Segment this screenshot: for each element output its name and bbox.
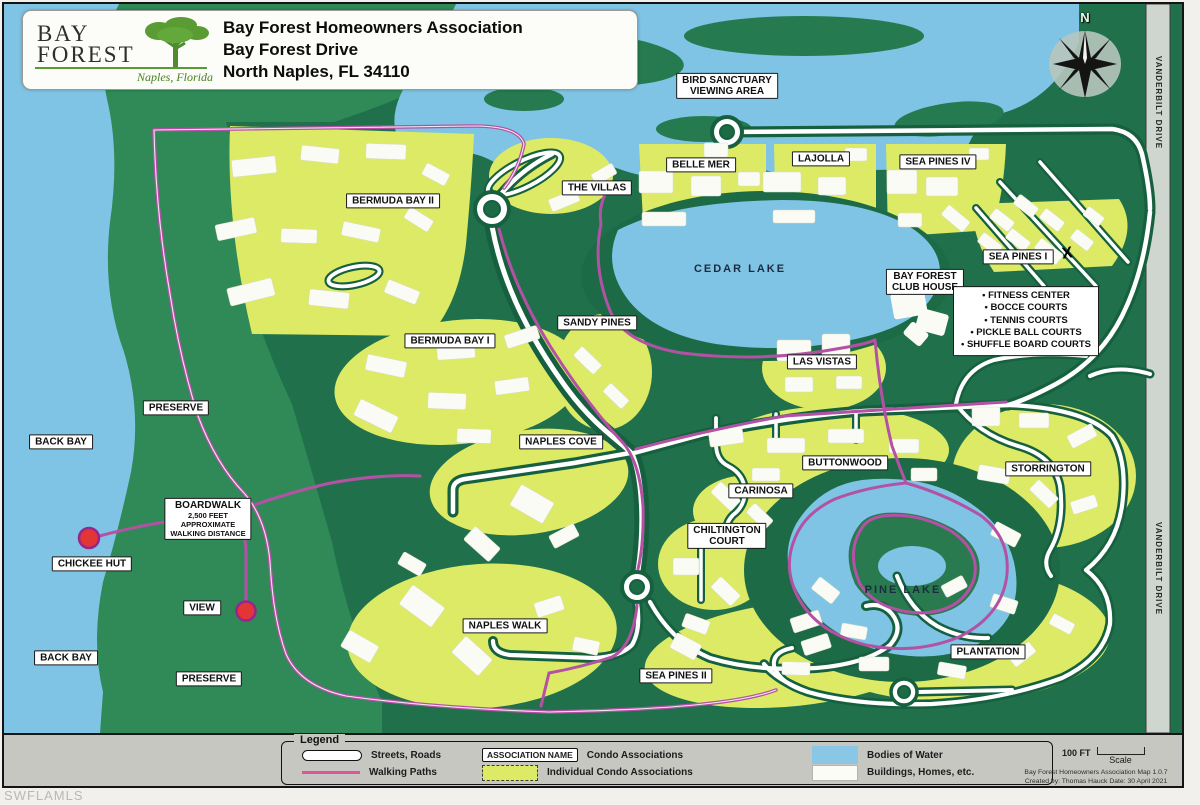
label-sea-pines-iv: SEA PINES IV <box>899 154 976 169</box>
label-belle-mer: BELLE MER <box>666 157 736 172</box>
walking-path-swatch-icon <box>302 771 360 774</box>
x-mark: X <box>1061 244 1074 263</box>
label-bermuda-bay-i: BERMUDA BAY I <box>404 333 495 348</box>
legend: Legend Streets, Roads ASSOCIATION NAME C… <box>281 741 1053 785</box>
legend-walking-paths-label: Walking Paths <box>369 767 437 778</box>
label-chickee-hut: CHICKEE HUT <box>52 556 132 571</box>
association-name-swatch: ASSOCIATION NAME <box>482 748 578 762</box>
label-storrington: STORRINGTON <box>1005 461 1091 476</box>
page-title: Bay Forest Homeowners Association Bay Fo… <box>223 17 523 83</box>
legend-buildings-label: Buildings, Homes, etc. <box>867 767 974 778</box>
legend-condo-assoc-label: Condo Associations <box>587 750 683 761</box>
label-view: VIEW <box>183 600 221 615</box>
legend-item-condo-assoc: ASSOCIATION NAME Condo Associations <box>482 748 812 762</box>
label-plantation: PLANTATION <box>951 644 1026 659</box>
label-naples-walk: NAPLES WALK <box>463 618 548 633</box>
legend-item-individual-condo: Individual Condo Associations <box>482 765 812 781</box>
title-line-2: Bay Forest Drive <box>223 39 523 61</box>
map-frame: BAY FOREST Naples, Florida Bay Forest Ho… <box>2 2 1184 788</box>
legend-item-water: Bodies of Water <box>812 746 1052 764</box>
legend-water-label: Bodies of Water <box>867 750 943 761</box>
pine-lake-inner-pond <box>878 546 946 586</box>
logo-underline <box>35 67 207 69</box>
boardwalk-sub: 2,500 FEET APPROXIMATE WALKING DISTANCE <box>170 511 245 538</box>
label-bird-sanctuary: BIRD SANCTUARY VIEWING AREA <box>676 73 778 99</box>
label-sea-pines-ii: SEA PINES II <box>639 668 712 683</box>
label-cedar-lake: CEDAR LAKE <box>689 262 791 276</box>
map-credits: Bay Forest Homeowners Association Map 1.… <box>1012 768 1180 786</box>
logo-subtitle: Naples, Florida <box>23 70 213 85</box>
label-buttonwood: BUTTONWOOD <box>802 455 888 470</box>
compass-rose-icon: N <box>1046 12 1124 109</box>
map-graphic <box>4 4 1184 733</box>
label-sandy-pines: SANDY PINES <box>557 315 637 330</box>
label-sea-pines-i: SEA PINES I <box>983 249 1054 264</box>
watermark: SWFLAMLS <box>4 788 84 803</box>
label-amenities: • FITNESS CENTER • BOCCE COURTS • TENNIS… <box>953 286 1099 356</box>
vanderbilt-drive-label-bottom: VANDERBILT DRIVE <box>1154 522 1163 615</box>
label-preserve-lower: PRESERVE <box>176 671 242 686</box>
label-las-vistas: LAS VISTAS <box>787 354 857 369</box>
label-back-bay-upper: BACK BAY <box>29 434 93 449</box>
label-carinosa: CARINOSA <box>728 483 793 498</box>
scale-bracket-icon <box>1097 747 1145 755</box>
title-block: BAY FOREST Naples, Florida Bay Forest Ho… <box>22 10 638 90</box>
vanderbilt-drive-label-top: VANDERBILT DRIVE <box>1154 56 1163 149</box>
label-bermuda-bay-ii: BERMUDA BAY II <box>346 193 440 208</box>
label-the-villas: THE VILLAS <box>562 180 632 195</box>
label-back-bay-lower: BACK BAY <box>34 650 98 665</box>
compass-north-label: N <box>1080 10 1089 25</box>
road-swatch-icon <box>302 750 362 761</box>
boardwalk-title: BOARDWALK <box>175 500 241 511</box>
scale-bar: 100 FT Scale <box>1062 747 1145 765</box>
label-chiltington-court: CHILTINGTON COURT <box>687 523 766 549</box>
credits-line-1: Bay Forest Homeowners Association Map 1.… <box>1012 768 1180 777</box>
legend-individual-condo-label: Individual Condo Associations <box>547 767 693 778</box>
label-naples-cove: NAPLES COVE <box>519 434 603 449</box>
view-marker <box>237 602 256 621</box>
water-swatch-icon <box>812 746 858 764</box>
legend-title: Legend <box>294 734 345 746</box>
legend-streets-label: Streets, Roads <box>371 750 441 761</box>
title-line-3: North Naples, FL 34110 <box>223 61 523 83</box>
tree-icon <box>141 17 211 71</box>
logo-name: BAY FOREST <box>37 23 135 65</box>
buildings-swatch-icon <box>812 765 858 781</box>
chickee-hut-marker <box>79 528 99 548</box>
label-preserve-upper: PRESERVE <box>143 400 209 415</box>
individual-condo-swatch-icon <box>482 765 538 781</box>
scale-distance: 100 FT <box>1062 747 1091 758</box>
legend-item-streets: Streets, Roads <box>302 750 482 761</box>
title-line-1: Bay Forest Homeowners Association <box>223 17 523 39</box>
legend-item-walking-paths: Walking Paths <box>302 767 482 778</box>
label-lajolla: LAJOLLA <box>792 151 850 166</box>
credits-line-2: Created by: Thomas Hauck Date: 30 April … <box>1012 777 1180 786</box>
bay-forest-logo: BAY FOREST Naples, Florida <box>23 15 223 85</box>
label-boardwalk: BOARDWALK2,500 FEET APPROXIMATE WALKING … <box>164 498 251 540</box>
bottom-band: Legend Streets, Roads ASSOCIATION NAME C… <box>4 733 1184 786</box>
scale-label: Scale <box>1097 755 1145 765</box>
label-pine-lake: PINE LAKE <box>860 583 947 597</box>
